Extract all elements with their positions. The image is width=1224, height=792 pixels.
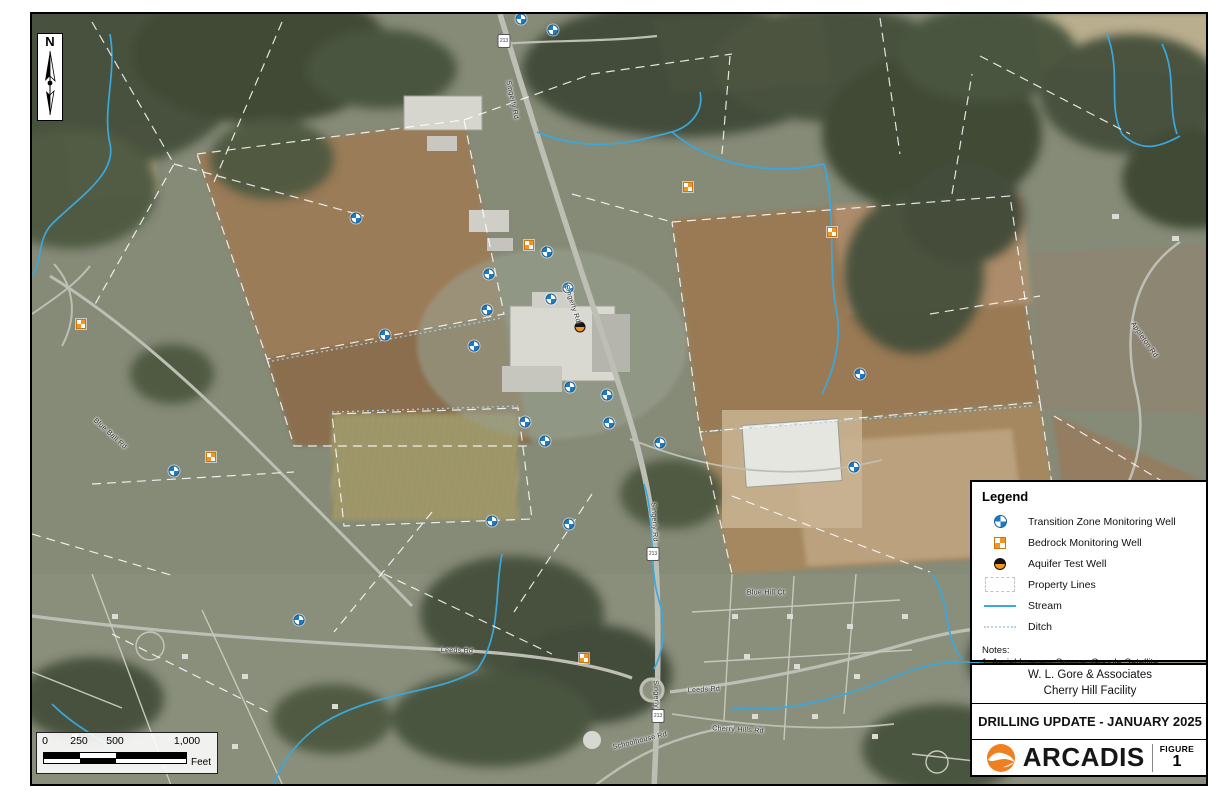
- legend-item-stream: Stream: [982, 595, 1198, 616]
- north-label: N: [45, 34, 54, 49]
- property-lines-icon: [985, 577, 1015, 592]
- scale-bar-graphic: [43, 752, 187, 764]
- bedrock-well-marker: [683, 182, 693, 192]
- road-label: Blue Hill Ct: [747, 590, 785, 597]
- divider: [1152, 744, 1153, 772]
- transition-well-marker: [602, 390, 613, 401]
- legend-item-transition-well: Transition Zone Monitoring Well: [982, 511, 1198, 532]
- route-shield: 213: [647, 547, 660, 561]
- map-frame: Singerly RdSingerly RdSingerly RdSingerl…: [30, 12, 1208, 786]
- transition-well-marker: [546, 294, 557, 305]
- bedrock-well-marker: [524, 240, 534, 250]
- ditch-line-icon: [984, 626, 1016, 628]
- bedrock-well-marker: [579, 653, 589, 663]
- arcadis-logo-icon: [986, 743, 1016, 773]
- transition-well-marker: [516, 14, 527, 25]
- scale-tick: 0: [42, 735, 48, 747]
- route-shield: 213: [652, 709, 665, 723]
- legend-item-aquifer-test-well: Aquifer Test Well: [982, 553, 1198, 574]
- scale-tick: 250: [70, 735, 88, 747]
- road-label: Schoolhouse Rd: [612, 731, 668, 751]
- transition-well-marker: [380, 330, 391, 341]
- transition-well-marker: [482, 305, 493, 316]
- road-label: Leeds Rd: [441, 647, 474, 655]
- figure-number-block: FIGURE 1: [1160, 745, 1195, 771]
- transition-well-marker: [169, 466, 180, 477]
- road-label: Leeds Rd: [688, 686, 721, 695]
- bedrock-well-marker: [206, 452, 216, 462]
- legend-item-ditch: Ditch: [982, 616, 1198, 637]
- stream-line-icon: [984, 605, 1016, 607]
- compass-needle-icon: [38, 49, 62, 117]
- figure-page: Singerly RdSingerly RdSingerly RdSingerl…: [0, 0, 1224, 792]
- client-block: W. L. Gore & Associates Cherry Hill Faci…: [972, 665, 1208, 704]
- transition-well-marker: [548, 25, 559, 36]
- transition-well-marker: [849, 462, 860, 473]
- transition-well-marker: [604, 418, 615, 429]
- transition-well-marker: [294, 615, 305, 626]
- transition-well-marker: [469, 341, 480, 352]
- legend-item-property-lines: Property Lines: [982, 574, 1198, 595]
- bedrock-well-marker: [76, 319, 86, 329]
- facility-name: Cherry Hill Facility: [1044, 684, 1137, 700]
- road-label: Singerly Rd: [504, 80, 519, 120]
- transition-well-marker: [351, 213, 362, 224]
- transition-well-icon: [994, 515, 1007, 528]
- transition-well-marker: [542, 247, 553, 258]
- scale-bar: 0 250 500 1,000 Feet: [36, 732, 218, 774]
- transition-well-marker: [540, 436, 551, 447]
- road-label: Cherry Hills Rd: [712, 725, 764, 735]
- transition-well-marker: [565, 382, 576, 393]
- scale-unit: Feet: [191, 757, 211, 768]
- logo-row: ARCADIS FIGURE 1: [972, 740, 1208, 775]
- title-block: W. L. Gore & Associates Cherry Hill Faci…: [970, 663, 1208, 777]
- transition-well-marker: [655, 438, 666, 449]
- transition-well-marker: [487, 516, 498, 527]
- transition-well-marker: [855, 369, 866, 380]
- legend-item-bedrock-well: Bedrock Monitoring Well: [982, 532, 1198, 553]
- north-arrow: N: [37, 33, 63, 121]
- transition-well-marker: [564, 519, 575, 530]
- transition-well-marker: [484, 269, 495, 280]
- scale-tick: 1,000: [174, 735, 200, 747]
- aquifer-test-well-icon: [994, 558, 1006, 570]
- road-label: Appleton Rd: [1129, 321, 1159, 359]
- legend-title: Legend: [982, 489, 1198, 504]
- scale-tick: 500: [106, 735, 124, 747]
- road-label: Blue Ball Rd: [92, 417, 128, 450]
- legend: Legend Transition Zone Monitoring Well B…: [970, 480, 1208, 662]
- client-name: W. L. Gore & Associates: [1028, 668, 1152, 684]
- arcadis-wordmark: ARCADIS: [1023, 742, 1145, 773]
- figure-number: 1: [1173, 754, 1182, 771]
- route-shield: 213: [498, 34, 511, 48]
- road-label: Singerly Rd: [649, 502, 658, 542]
- notes-title: Notes:: [982, 645, 1198, 657]
- transition-well-marker: [520, 417, 531, 428]
- bedrock-well-marker: [827, 227, 837, 237]
- figure-title: DRILLING UPDATE - JANUARY 2025: [972, 704, 1208, 740]
- bedrock-well-icon: [994, 537, 1006, 549]
